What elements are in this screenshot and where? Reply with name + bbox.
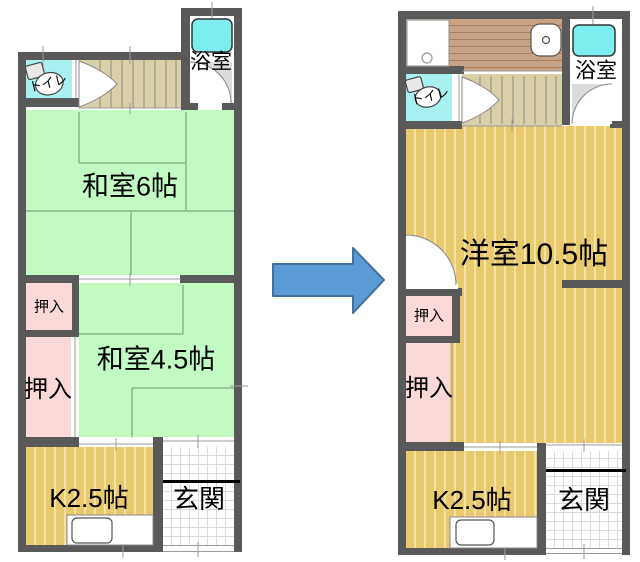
wall [153,437,163,552]
wall [610,121,630,128]
wall [234,545,242,552]
before-kitchen-label: K2.5帖 [49,485,129,511]
wall [182,8,242,16]
wall [562,280,630,288]
wall [222,103,242,110]
before-entrance-label: 玄関 [173,486,225,512]
floor-plan-comparison: 浴室 トイレ 和室6帖 押入 和室4.5帖 押入 K2.5帖 玄関 浴室 トイレ… [0,0,640,562]
after-bathroom-label: 浴室 [575,61,617,82]
wall [398,442,464,451]
wall [234,110,242,552]
before-bathroom-label: 浴室 [190,52,232,73]
wall [398,66,464,74]
wall [452,288,460,343]
after-closet-large-label: 押入 [405,377,453,401]
wall [537,443,546,555]
wall [562,11,570,125]
wall [18,98,79,107]
wall [182,103,198,110]
before-front-door [163,545,234,552]
wall [398,548,545,555]
wall [180,275,242,283]
before-closet-small-label: 押入 [34,300,64,315]
wall [622,548,630,555]
transform-arrow-icon [273,248,384,313]
after-laundry-deck [406,19,562,71]
wall [398,11,630,19]
wall [398,11,406,555]
after-front-door [546,548,622,554]
wall [72,275,79,337]
wall [398,336,460,343]
wall [18,275,79,283]
wall [18,52,26,552]
wall [398,121,462,129]
before-tatami45-label: 和室4.5帖 [97,347,216,374]
wall [234,8,242,110]
before-closet-large-label: 押入 [24,378,72,402]
before-tatami6-label: 和室6帖 [82,174,178,201]
wall [18,437,79,447]
wall [181,8,190,110]
before-stairs [79,60,181,108]
after-stairs [462,74,562,126]
wall [18,52,182,60]
after-closet-small-label: 押入 [414,309,444,324]
after-kitchen-label: K2.5帖 [432,487,512,513]
after-western-label: 洋室10.5帖 [460,240,608,270]
wall [18,545,163,552]
after-entrance-label: 玄関 [558,487,610,513]
wall [18,330,79,337]
